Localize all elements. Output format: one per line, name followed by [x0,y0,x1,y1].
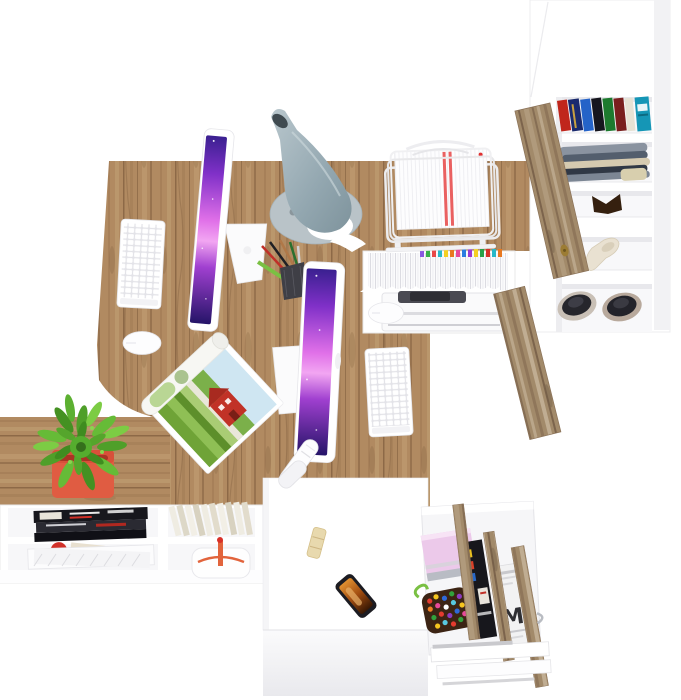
keyboard-2 [365,347,414,437]
bag-strap [218,540,223,566]
pedestal-cabinet [263,478,428,696]
sideboard-divider [158,508,168,570]
mouse-1 [123,332,161,355]
wardrobe-side-face [654,0,670,330]
mouse-2 [369,303,404,324]
folded-clothes [559,143,651,185]
keyboard-1 [117,219,166,309]
document-shelf [360,249,508,292]
cabinet-front-face [263,630,428,696]
paper-fan [28,545,155,569]
sideboard [0,502,263,583]
tray-papers [394,148,489,229]
cabinet-top-face [263,478,428,630]
scene: M [0,0,681,700]
open-drawer: M [410,500,552,694]
workspace-render: M [0,0,681,700]
